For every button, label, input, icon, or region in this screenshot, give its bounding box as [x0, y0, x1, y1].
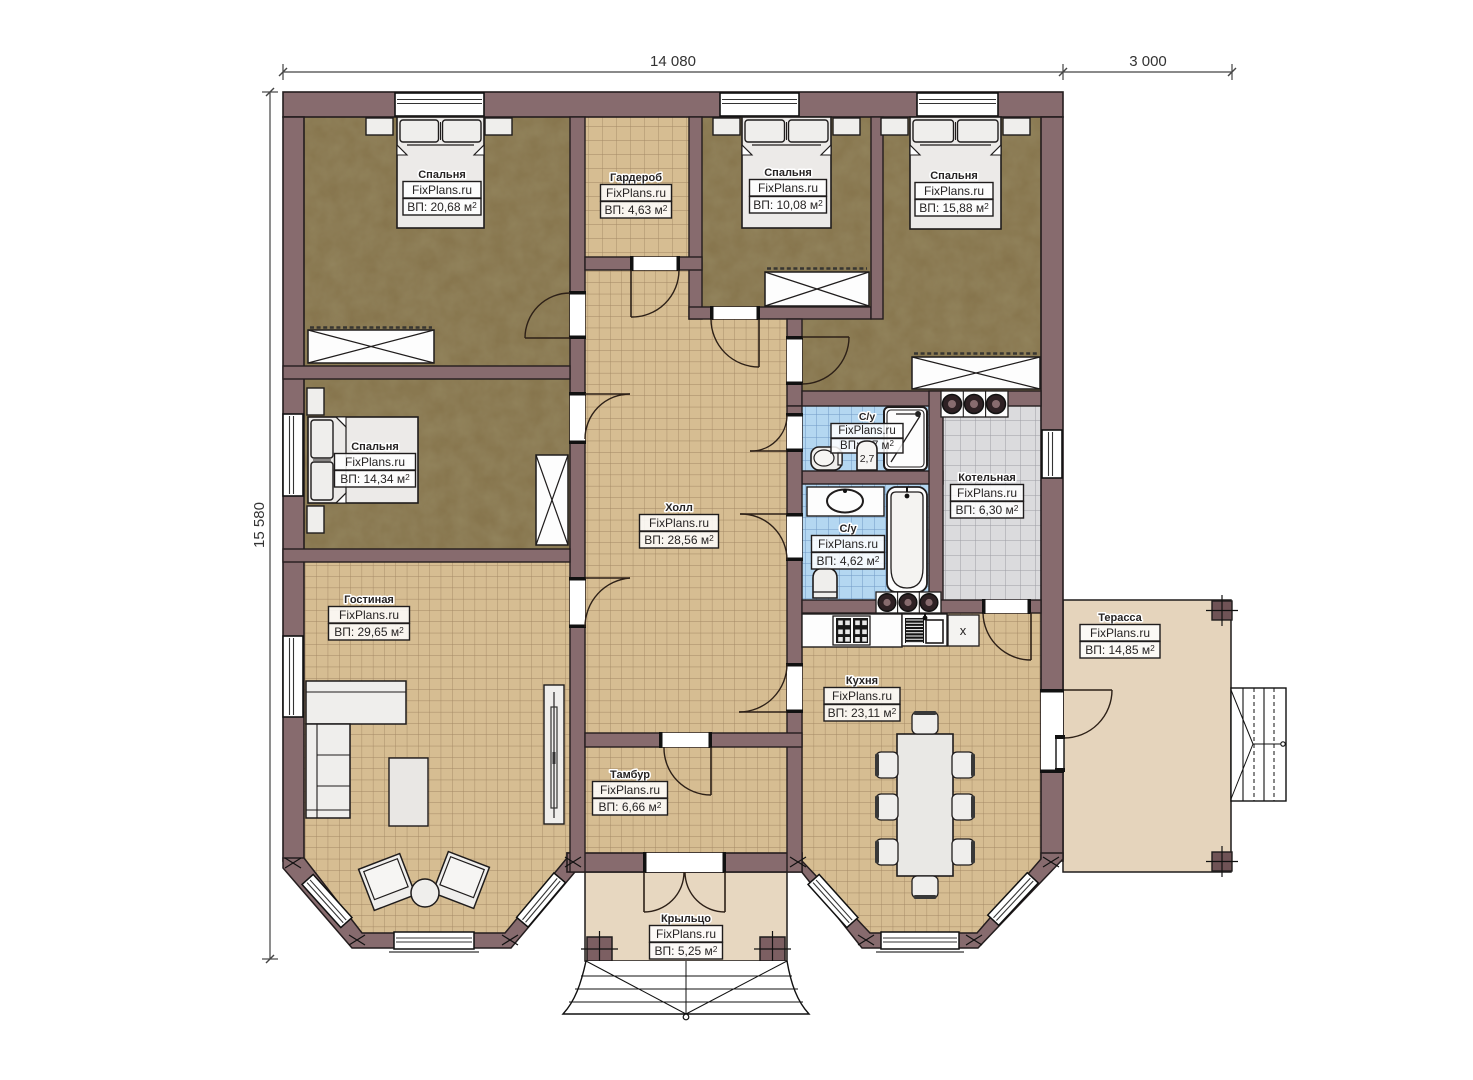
svg-text:ВП: 10,08 м2: ВП: 10,08 м2 — [753, 198, 823, 212]
svg-text:FixPlans.ru: FixPlans.ru — [656, 927, 716, 941]
svg-text:ВП: 6,30 м2: ВП: 6,30 м2 — [956, 503, 1019, 517]
svg-text:Тамбур: Тамбур — [610, 769, 650, 781]
svg-text:FixPlans.ru: FixPlans.ru — [345, 455, 405, 469]
svg-text:ВП: 29,65 м2: ВП: 29,65 м2 — [334, 625, 404, 639]
svg-text:ВП: 4,63 м2: ВП: 4,63 м2 — [605, 203, 668, 217]
svg-text:14 080: 14 080 — [650, 53, 696, 70]
svg-text:Спальня: Спальня — [764, 167, 812, 179]
svg-text:ВП: 4,62 м2: ВП: 4,62 м2 — [817, 554, 880, 568]
svg-text:ВП: 28,56 м2: ВП: 28,56 м2 — [644, 533, 714, 547]
svg-text:x: x — [960, 623, 967, 638]
svg-text:FixPlans.ru: FixPlans.ru — [1090, 626, 1150, 640]
svg-text:С/у: С/у — [859, 411, 876, 423]
svg-text:FixPlans.ru: FixPlans.ru — [924, 184, 984, 198]
svg-text:ВП: 15,88 м2: ВП: 15,88 м2 — [919, 201, 989, 215]
svg-text:FixPlans.ru: FixPlans.ru — [832, 689, 892, 703]
svg-text:FixPlans.ru: FixPlans.ru — [957, 486, 1017, 500]
svg-text:15 580: 15 580 — [251, 502, 268, 548]
svg-text:2,7: 2,7 — [860, 453, 875, 465]
svg-text:ВП: 23,11 м2: ВП: 23,11 м2 — [828, 706, 897, 720]
svg-text:Кухня: Кухня — [846, 675, 878, 687]
svg-text:Гостиная: Гостиная — [344, 594, 394, 606]
svg-text:FixPlans.ru: FixPlans.ru — [606, 186, 666, 200]
svg-text:FixPlans.ru: FixPlans.ru — [758, 181, 818, 195]
svg-text:ВП: 14,34 м2: ВП: 14,34 м2 — [340, 472, 410, 486]
svg-text:ВП: 20,68 м2: ВП: 20,68 м2 — [407, 200, 477, 214]
svg-text:FixPlans.ru: FixPlans.ru — [649, 516, 709, 530]
svg-text:ВП: 6,66 м2: ВП: 6,66 м2 — [599, 800, 662, 814]
svg-text:Крыльцо: Крыльцо — [661, 913, 711, 925]
svg-text:С/у: С/у — [839, 523, 857, 535]
svg-text:FixPlans.ru: FixPlans.ru — [339, 608, 399, 622]
svg-text:FixPlans.ru: FixPlans.ru — [838, 425, 896, 437]
svg-text:Гардероб: Гардероб — [610, 172, 662, 184]
svg-text:3 000: 3 000 — [1129, 53, 1167, 70]
svg-text:Котельная: Котельная — [958, 472, 1016, 484]
svg-text:FixPlans.ru: FixPlans.ru — [412, 183, 472, 197]
svg-text:ВП: 14,85 м2: ВП: 14,85 м2 — [1085, 643, 1155, 657]
svg-text:Спальня: Спальня — [930, 170, 978, 182]
svg-text:ВП: 5,25 м2: ВП: 5,25 м2 — [655, 944, 718, 958]
svg-text:Холл: Холл — [665, 502, 693, 514]
svg-text:Терасса: Терасса — [1098, 612, 1142, 624]
svg-text:Спальня: Спальня — [418, 169, 466, 181]
svg-text:Спальня: Спальня — [351, 441, 399, 453]
svg-text:FixPlans.ru: FixPlans.ru — [818, 537, 878, 551]
svg-text:FixPlans.ru: FixPlans.ru — [600, 783, 660, 797]
